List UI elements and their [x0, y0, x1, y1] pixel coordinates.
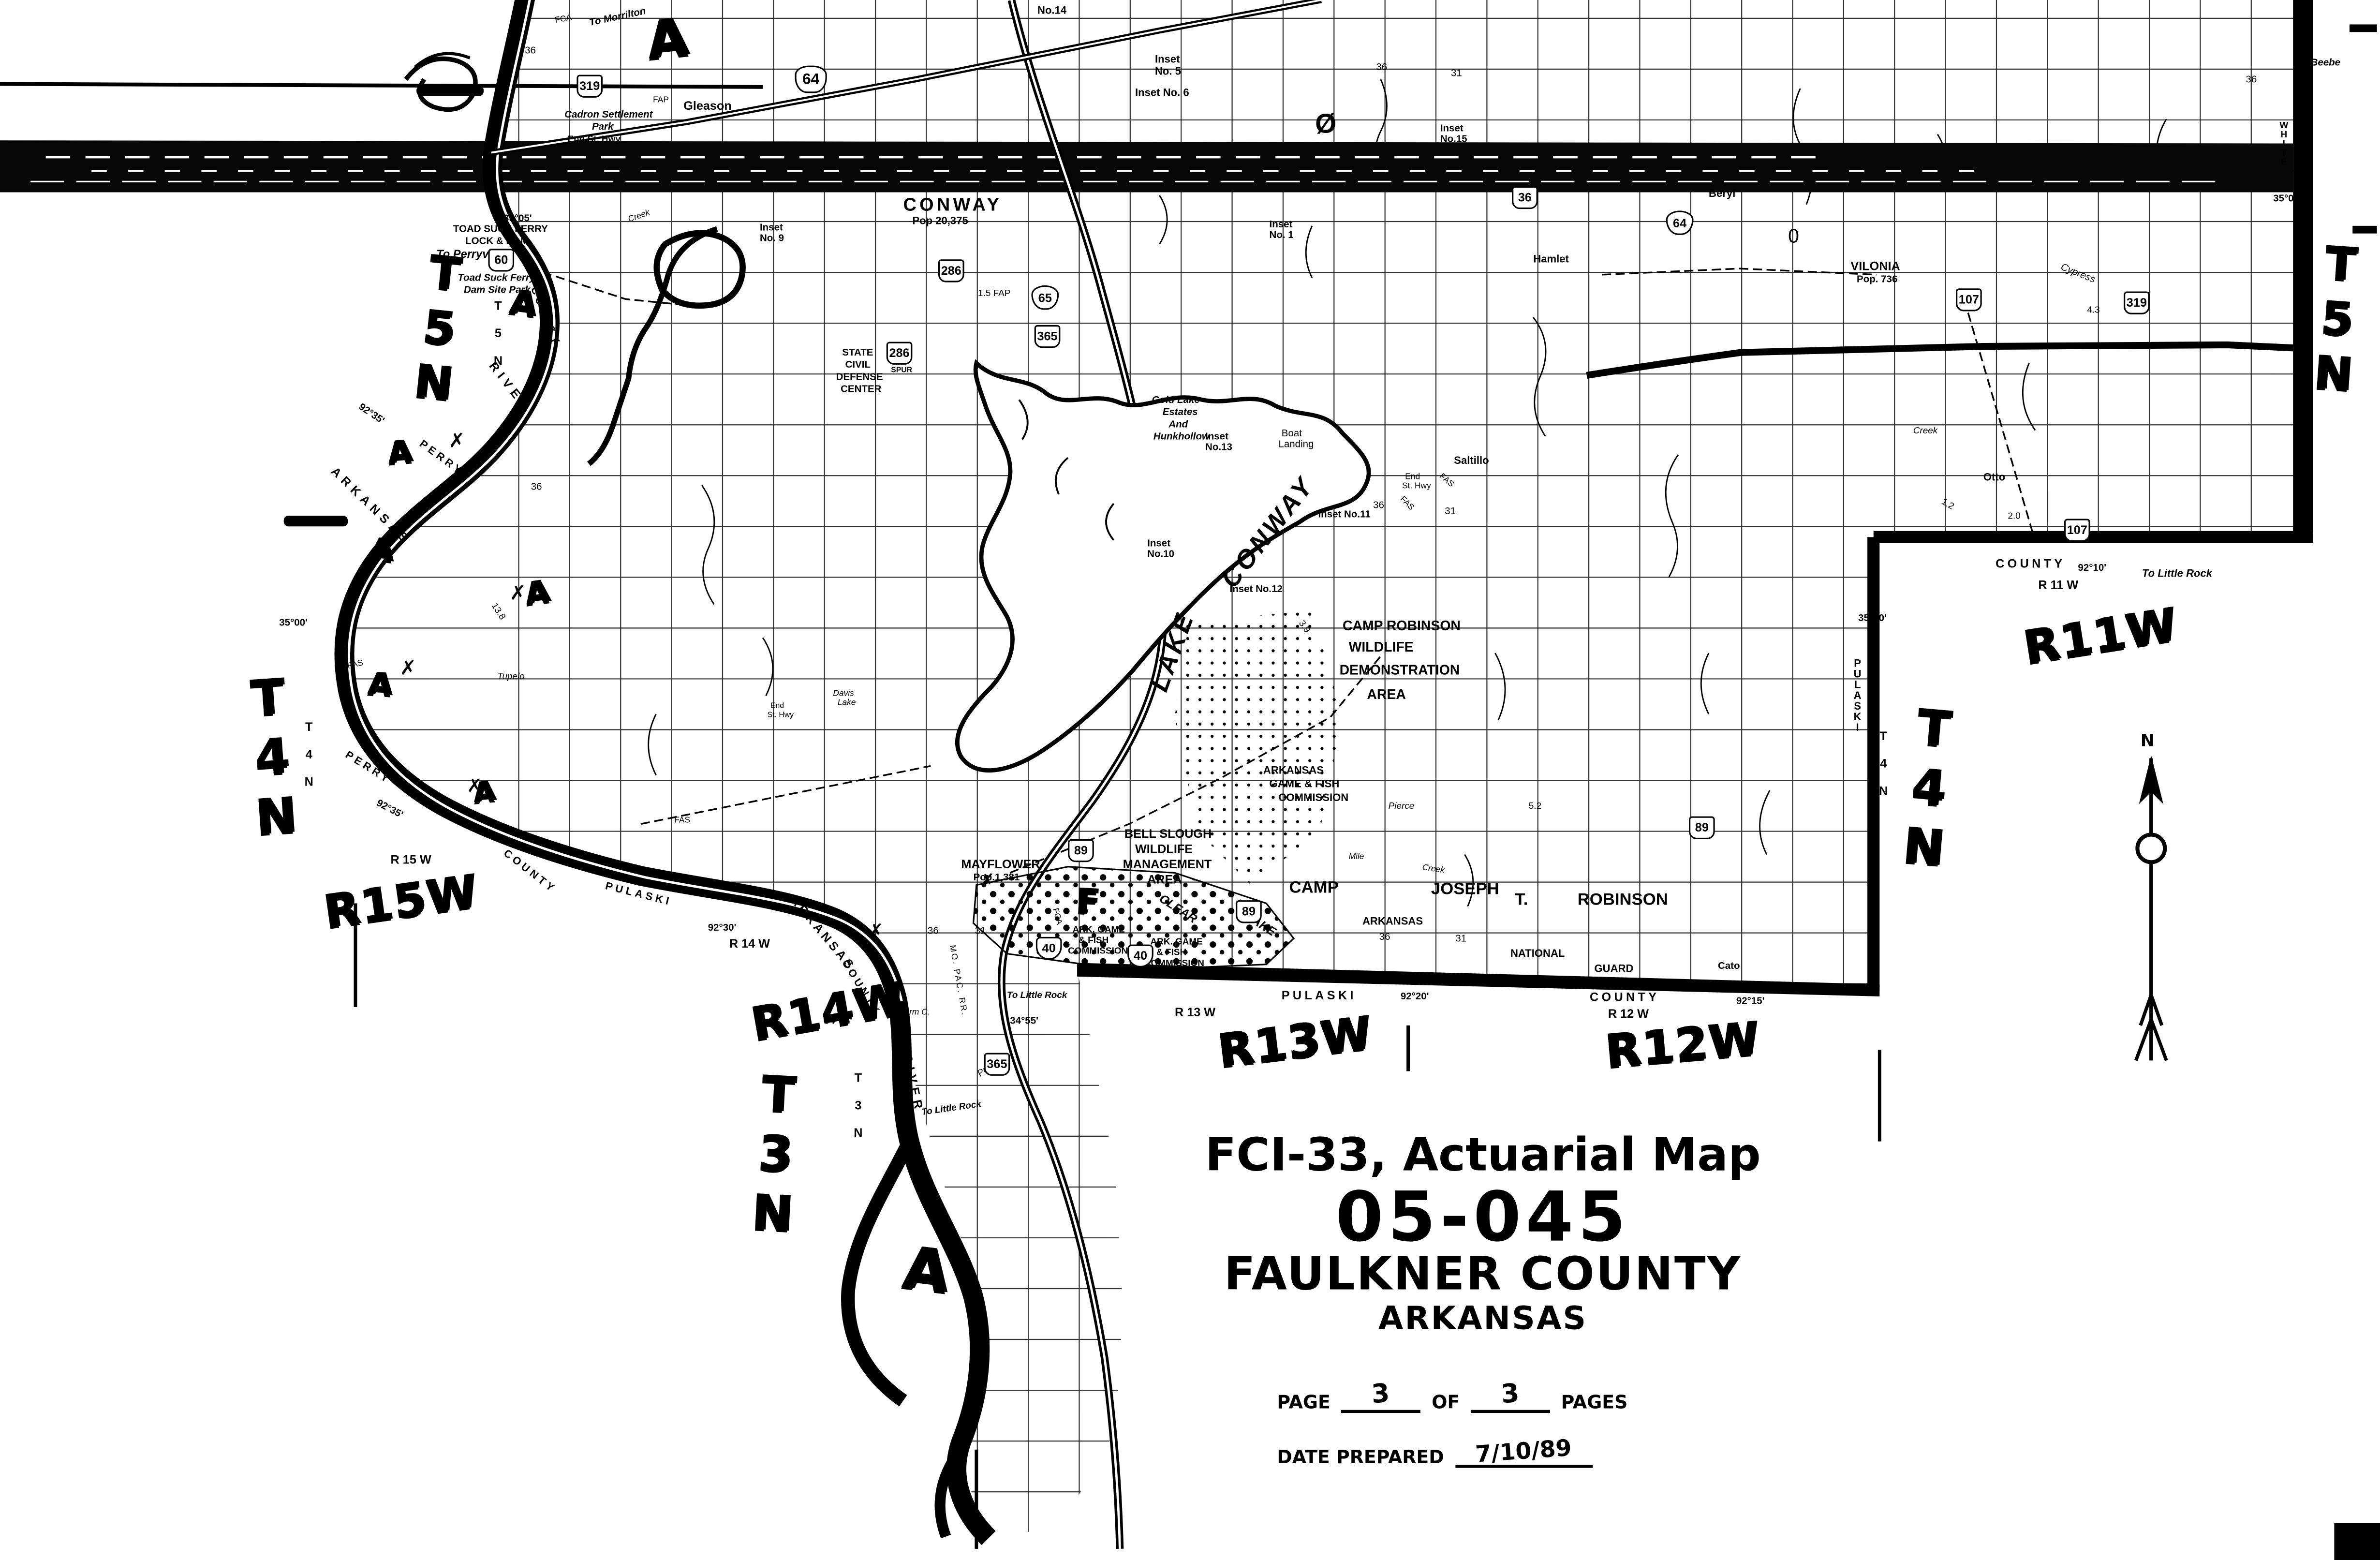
page-total-line: 3	[1471, 1379, 1550, 1412]
area-bell-slough-2: WILDLIFE	[1135, 844, 1193, 857]
section-31-s: 31	[1455, 934, 1466, 945]
title-block: FCI-33, Actuarial Map 05-045 FAULKNER CO…	[1193, 1129, 1773, 1467]
town-gleason: Gleason	[683, 101, 732, 114]
tr-printed-r14w: R 14 W	[729, 938, 770, 951]
area-civil-defense-2: CIVIL	[845, 360, 871, 371]
hand-t4n-left: T4N	[241, 667, 302, 848]
area-gold-lake-3: And	[1168, 419, 1188, 430]
date-value: 7/10/89	[1475, 1433, 1573, 1468]
map-county: FAULKNER COUNTY	[1193, 1251, 1773, 1299]
inset-no12: Inset No.12	[1230, 584, 1283, 595]
arkansas-river	[344, 0, 989, 1538]
area-agfc-south-2: & FISH	[1156, 949, 1186, 959]
ar-365-shield-south: 365	[984, 1053, 1010, 1076]
conway-city-boundary	[589, 229, 743, 464]
hand-t3n: T3N	[746, 1064, 804, 1245]
hand-t5n-right: T5N	[2307, 237, 2364, 404]
ar-319-shield-west: 319	[577, 75, 603, 98]
area-civil-defense-4: CENTER	[841, 385, 881, 395]
inset-no5-2: No. 5	[1155, 67, 1181, 79]
date-line: 7/10/89	[1455, 1437, 1592, 1467]
note-end-hwy-davis-2: St. Hwy	[768, 713, 794, 721]
area-cadron-2: Park	[592, 122, 614, 133]
area-toad-suck-2: LOCK & DAM	[465, 237, 529, 247]
inset-no5-1: Inset	[1155, 55, 1180, 67]
water-mile: Mile	[1349, 855, 1364, 864]
dark-scan-band	[0, 84, 2293, 192]
ar-89-shield-mid: 89	[1236, 900, 1262, 923]
page-row: PAGE 3 OF 3 PAGES	[1277, 1379, 1773, 1412]
mileage-52: 5.2	[1529, 802, 1541, 812]
area-camp-robinson-wda-4: AREA	[1367, 688, 1405, 703]
town-vilonia: VILONIA	[1850, 261, 1900, 274]
inset-no10-2: No.10	[1147, 550, 1174, 560]
map-number: 05-045	[1193, 1183, 1773, 1251]
note-to-little-rock-right: To Little Rock	[2142, 569, 2212, 581]
area-bell-slough-1: BELL SLOUGH	[1124, 829, 1212, 842]
hand-x-mark-3: ✗	[399, 659, 416, 681]
note-fap-nw: FAP	[653, 98, 669, 107]
area-civil-defense-3: DEFENSE	[836, 372, 883, 383]
note-boat-landing-2: Landing	[1278, 439, 1314, 450]
town-conway: CONWAY	[903, 195, 1002, 215]
date-label: DATE PREPARED	[1277, 1446, 1444, 1467]
area-bell-slough-4: AREA	[1147, 875, 1182, 888]
water-creek-ne: Creek	[1913, 427, 1938, 437]
county-white-right: WHITE	[2279, 122, 2289, 168]
page-total-value: 3	[1500, 1378, 1521, 1410]
section-36-ne: 36	[2246, 75, 2257, 86]
town-vilonia-pop: Pop. 736	[1857, 275, 1897, 285]
inset-no1-2: No. 1	[1270, 230, 1294, 241]
null-symbol: Ø	[1315, 110, 1336, 139]
inset-no15-1: Inset	[1440, 124, 1463, 134]
coord-3455-right: 34°55'	[1010, 1016, 1038, 1027]
inset-no15-2: No.15	[1440, 134, 1467, 145]
of-label: OF	[1432, 1391, 1460, 1412]
area-camp-robinson-wda-2: WILDLIFE	[1349, 641, 1414, 656]
us64-heavy-road	[1587, 345, 2293, 375]
section-36-sw: 36	[928, 926, 939, 937]
area-cj-arkansas: ARKANSAS	[1362, 917, 1423, 929]
area-t: T.	[1515, 892, 1528, 910]
tr-printed-t4n-left: T 4 N	[302, 720, 314, 789]
town-saltillo: Saltillo	[1454, 456, 1489, 468]
interstate-40-corridor	[1002, 0, 1164, 1549]
county-pulaski-right: PULASKI	[1852, 659, 1863, 734]
area-civil-defense-1: STATE	[842, 348, 873, 358]
note-end-hwy-saltillo-2: St. Hwy	[1402, 484, 1431, 493]
area-joseph: JOSEPH	[1431, 882, 1499, 900]
area-cadron-1: Cadron Settlement	[564, 110, 652, 120]
section-36-n: 36	[1376, 62, 1387, 73]
hand-a-mark-3: A	[386, 435, 413, 470]
hand-x-mark-2: ✗	[510, 584, 526, 606]
county-pulaski-bottom: PULASKI	[1282, 990, 1357, 1003]
note-to-beebe: To Beebe	[2296, 58, 2341, 69]
coord-9220: 92°20'	[1401, 992, 1429, 1002]
area-national: NATIONAL	[1510, 949, 1565, 961]
section-31-sw: 31	[975, 926, 986, 937]
inset-no6: Inset No. 6	[1135, 89, 1189, 100]
hand-x-mark-5: ✗	[868, 921, 884, 941]
hand-a-mark-6: A	[367, 668, 392, 702]
page-label: PAGE	[1277, 1391, 1330, 1412]
hand-t4n-right: T4N	[1896, 697, 1961, 879]
area-agfc-east-2: & FISH	[1079, 937, 1109, 947]
north-arrow	[2136, 755, 2166, 1060]
town-mayflower: MAYFLOWER	[961, 859, 1040, 872]
water-pierce: Pierce	[1389, 802, 1415, 812]
note-boat-landing-1: Boat	[1282, 429, 1302, 439]
area-gold-lake-2: Estates	[1163, 407, 1198, 418]
note-fap15: 1.5 FAP	[978, 290, 1010, 299]
note-fas-4: FAS	[674, 818, 690, 827]
hand-a-mark-4: A	[368, 533, 395, 568]
section-36-nw: 36	[525, 46, 536, 57]
hand-x-mark-6: ✗	[979, 871, 995, 891]
north-arrow-label: N	[2141, 732, 2155, 750]
inset-no13-2: No.13	[1205, 443, 1232, 453]
town-hamlet: Hamlet	[1533, 255, 1569, 267]
us-64-shield-west: 64	[795, 66, 827, 93]
inset-no10-1: Inset	[1147, 539, 1170, 550]
area-agfc-east-1: ARK. GAME	[1073, 926, 1125, 936]
map-canvas: CONWAY Pop 20,375 VILONIA Pop. 736 MAYFL…	[0, 0, 2380, 1560]
date-row: DATE PREPARED 7/10/89	[1277, 1437, 1773, 1467]
area-robinson: ROBINSON	[1578, 892, 1668, 910]
tr-printed-r12w: R 12 W	[1608, 1009, 1649, 1022]
area-camp-robinson-wda-3: DEMONSTRATION	[1340, 664, 1460, 679]
hand-x-mark-1: ✗	[448, 432, 465, 453]
section-31-n: 31	[1451, 69, 1462, 79]
coord-9215: 92°15'	[1736, 996, 1765, 1007]
area-agfc-south-3: COMMISSION	[1144, 960, 1204, 969]
tr-printed-t5n-left: T 5 N	[491, 299, 503, 368]
area-camp: CAMP	[1289, 880, 1339, 898]
coord-9210: 92°10'	[2078, 563, 2106, 574]
note-to-little-rock-mid: To Little Rock	[1007, 992, 1067, 1001]
coord-3500-right: 35°00'	[1858, 613, 1887, 624]
ar-107-shield-north: 107	[1956, 288, 1982, 311]
area-toad-suck-1: TOAD SUCK FERRY	[453, 224, 548, 235]
tr-printed-t3n: T 3 N	[851, 1071, 863, 1140]
ar-286-shield: 286	[938, 259, 964, 282]
map-state: ARKANSAS	[1193, 1299, 1773, 1336]
coord-3505-left: 35°05'	[503, 214, 532, 224]
hand-x-mark-4: ✗	[467, 777, 482, 797]
inset-no1-1: Inset	[1270, 220, 1293, 230]
ar-89-shield-east: 89	[1689, 817, 1715, 839]
section-36-w: 36	[531, 482, 542, 493]
ar-286-spur-shield: 286	[887, 342, 913, 365]
hand-a-mark-2: A	[507, 285, 538, 325]
ar-36-shield: 36	[1512, 186, 1538, 209]
area-guard: GUARD	[1594, 965, 1633, 976]
ar-319-shield-east: 319	[2124, 292, 2150, 314]
tr-printed-r15w: R 15 W	[391, 855, 431, 868]
ar-107-shield-south: 107	[2064, 519, 2090, 542]
note-end-st-hwy-1: End St. Hwy	[567, 136, 620, 146]
inset-no9-2: No. 9	[760, 234, 784, 244]
town-otto: Otto	[1983, 473, 2005, 485]
section-36-mid: 36	[1373, 501, 1384, 511]
hand-f-mark: F	[1075, 884, 1099, 921]
coord-3505-right: 35°05'	[2273, 194, 2302, 205]
mileage-20: 2.0	[2008, 513, 2020, 522]
area-agfc-1: ARKANSAS	[1263, 766, 1324, 778]
hand-a-mark-5: A	[523, 575, 551, 611]
inset-no9-1: Inset	[760, 223, 783, 234]
map-title: FCI-33, Actuarial Map	[1193, 1129, 1773, 1182]
section-36-s: 36	[1379, 932, 1390, 943]
hand-a-mark-8: A	[900, 1236, 952, 1304]
tr-printed-r11w: R 11 W	[2038, 580, 2078, 593]
pages-label: PAGES	[1561, 1391, 1628, 1412]
county-county-right: COUNTY	[1996, 559, 2065, 572]
area-camp-robinson-wda-1: CAMP ROBINSON	[1343, 620, 1461, 635]
ar-60-shield: 60	[488, 249, 514, 271]
section-31-mid: 31	[1445, 506, 1456, 517]
inset-no14: No.14	[1037, 6, 1066, 18]
ar-89-shield-west: 89	[1068, 839, 1094, 862]
oval-zero-symbol: 0	[1788, 226, 1799, 247]
town-beryl: Beryl	[1709, 189, 1735, 201]
note-end-hwy-davis-1: End	[770, 703, 784, 712]
area-gold-lake-4: Hunkhollow	[1153, 432, 1210, 443]
inset-no11: Inset No.11	[1318, 510, 1370, 520]
inset-no13-1: Inset	[1205, 432, 1228, 443]
mileage-43: 4.3	[2087, 307, 2099, 316]
area-bell-slough-3: MANAGEMENT	[1123, 859, 1212, 872]
tr-printed-t4n-right: T 4 N	[1877, 729, 1889, 798]
hand-a-mark-1: A	[644, 10, 690, 70]
town-conway-pop: Pop 20,375	[912, 217, 968, 228]
coord-9230: 92°30'	[708, 923, 737, 934]
tr-printed-r13w: R 13 W	[1175, 1007, 1215, 1020]
water-davis-lake-2: Lake	[838, 700, 856, 710]
scanned-actuarial-map-page: CONWAY Pop 20,375 VILONIA Pop. 736 MAYFL…	[0, 0, 2380, 1560]
area-agfc-east-3: COMMISSION	[1068, 948, 1128, 957]
town-cato: Cato	[1718, 961, 1740, 972]
area-gold-lake-1: Gold Lake	[1152, 395, 1200, 406]
camp-robinson-stipple	[1175, 610, 1343, 885]
coord-3500-left: 35°00'	[279, 618, 308, 629]
page-current-line: 3	[1341, 1379, 1420, 1412]
page-current-value: 3	[1371, 1378, 1391, 1410]
area-agfc-south-1: ARK. GAME	[1150, 938, 1202, 948]
area-agfc-2: GAME & FISH	[1270, 780, 1340, 791]
county-county-bottom: COUNTY	[1590, 992, 1659, 1005]
ar-286-spur-text: SPUR	[891, 366, 912, 375]
base-map-linework	[0, 0, 2380, 1560]
ar-365-shield-north: 365	[1035, 325, 1061, 348]
area-agfc-3: COMMISSION	[1278, 793, 1348, 805]
water-tupelo: Tupelo	[497, 673, 524, 683]
